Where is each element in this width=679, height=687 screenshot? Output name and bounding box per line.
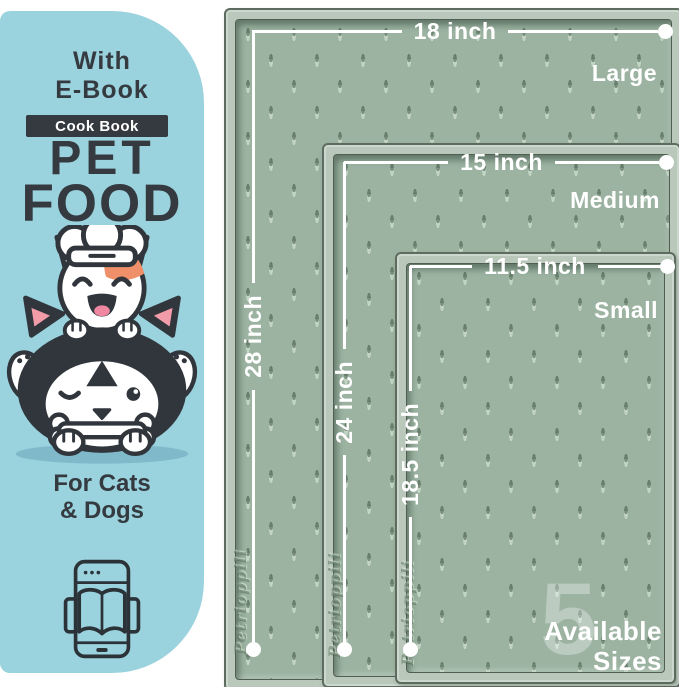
title-food: FOOD [0, 177, 204, 230]
dimension-endpoint-dot [246, 642, 261, 657]
size-tag-large: Large [592, 60, 657, 87]
dimension-endpoint-dot [403, 642, 418, 657]
available-line: Available [544, 616, 662, 646]
dimension-line-segment [252, 30, 402, 33]
for-cats-dogs-text: For Cats & Dogs [0, 471, 204, 525]
available-sizes-label: Available Sizes [544, 617, 662, 677]
with-ebook-line2: E-Book [55, 76, 149, 104]
dimension-endpoint-dot [337, 642, 352, 657]
height-label-large: 28 inch [240, 295, 267, 378]
with-ebook-heading: With E-Book [0, 47, 204, 105]
mat-small-surface [406, 263, 665, 673]
for-cats-line: For Cats [53, 470, 150, 497]
height-dimension-large: 28 inch [239, 31, 267, 657]
sizes-line: Sizes [593, 646, 662, 676]
width-dimension-small: 11.5 inch [410, 252, 675, 280]
and-dogs-line: & Dogs [60, 497, 144, 524]
dimension-endpoint-dot [660, 259, 675, 274]
dimension-line-segment [252, 390, 255, 642]
dimension-line-segment [555, 161, 659, 164]
height-label-medium: 24 inch [331, 361, 358, 444]
dimension-line-segment [409, 266, 412, 391]
width-dimension-large: 18 inch [252, 17, 673, 45]
width-label-large: 18 inch [414, 18, 497, 45]
width-label-medium: 15 inch [460, 149, 543, 176]
width-label-small: 11.5 inch [484, 253, 586, 280]
info-panel: With E-Book Cook Book PET FOOD [0, 11, 204, 673]
dimension-endpoint-dot [659, 155, 674, 170]
dimension-line-segment [252, 31, 255, 283]
height-dimension-small: 18.5 inch [396, 266, 424, 657]
size-tag-medium: Medium [570, 187, 660, 214]
dimension-line-segment [343, 162, 346, 349]
dimension-line-segment [344, 161, 448, 164]
dimension-line-segment [409, 517, 412, 642]
cat-dog-chef-illustration [4, 225, 200, 471]
width-dimension-medium: 15 inch [344, 148, 674, 176]
dimension-line-segment [343, 455, 346, 642]
height-label-small: 18.5 inch [397, 403, 424, 506]
product-infographic: With E-Book Cook Book PET FOOD [0, 0, 679, 687]
dimension-line-segment [508, 30, 658, 33]
with-ebook-line1: With [73, 47, 131, 75]
height-dimension-medium: 24 inch [330, 162, 358, 657]
size-tag-small: Small [594, 297, 658, 324]
ebook-tablet-icon [61, 557, 143, 661]
dimension-line-segment [598, 265, 660, 268]
dimension-endpoint-dot [658, 24, 673, 39]
